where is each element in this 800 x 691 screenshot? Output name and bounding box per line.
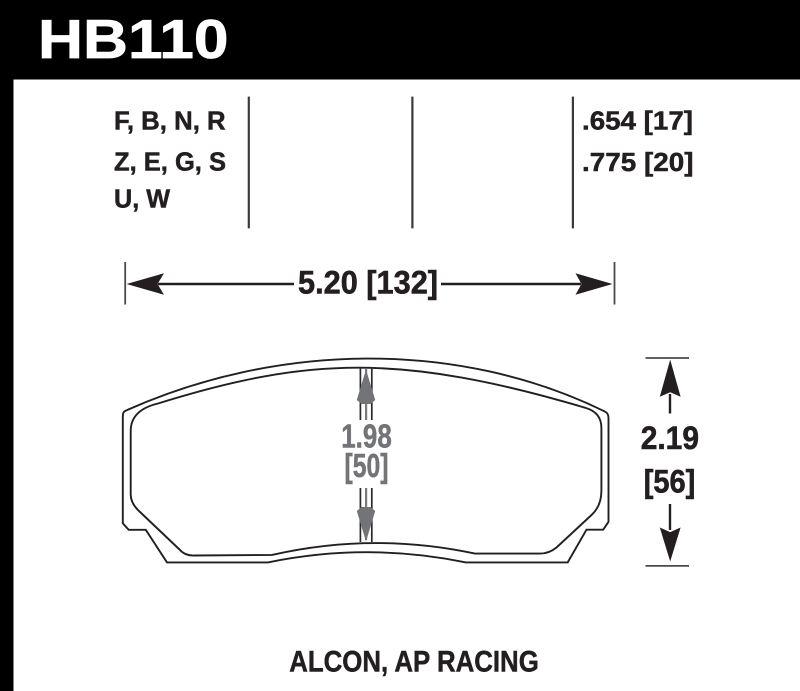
svg-text:5.20 [132]: 5.20 [132]	[298, 265, 438, 301]
svg-text:[50]: [50]	[345, 447, 389, 484]
svg-text:HB110: HB110	[38, 8, 229, 70]
svg-text:Z, E, G, S: Z, E, G, S	[114, 146, 226, 176]
svg-text:U, W: U, W	[114, 184, 170, 214]
svg-text:F, B, N, R: F, B, N, R	[114, 106, 226, 136]
svg-text:ALCON, AP RACING: ALCON, AP RACING	[289, 645, 539, 678]
svg-text:[56]: [56]	[644, 464, 696, 500]
svg-text:2.19: 2.19	[641, 420, 699, 456]
svg-text:.775 [20]: .775 [20]	[582, 147, 694, 177]
svg-text:.654 [17]: .654 [17]	[582, 106, 693, 136]
